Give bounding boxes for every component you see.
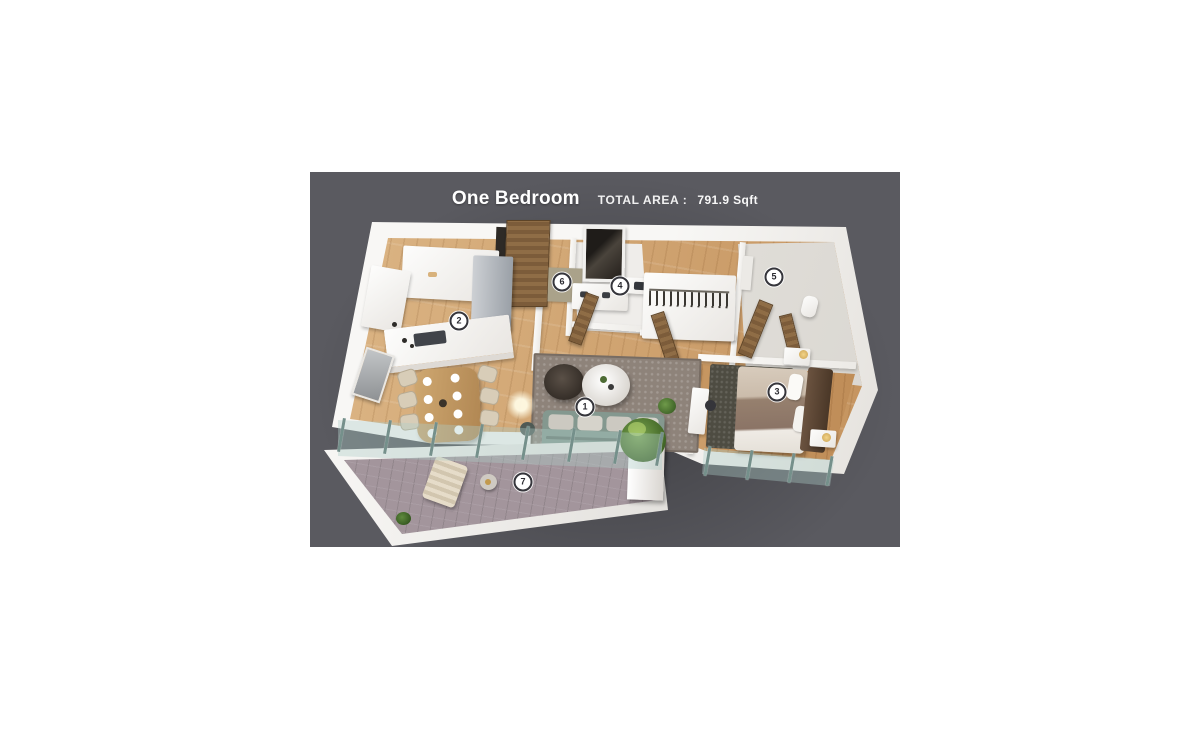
floorplan-panel: One Bedroom TOTAL AREA : 791.9 Sqft — [310, 172, 900, 547]
total-area: TOTAL AREA : 791.9 Sqft — [598, 193, 758, 207]
room-markers-layer: 1234567 — [310, 172, 900, 547]
marker-bathroom: 4 — [611, 277, 630, 296]
total-area-value: 791.9 Sqft — [697, 193, 758, 207]
marker-entry: 6 — [553, 273, 572, 292]
marker-balcony: 7 — [514, 473, 533, 492]
marker-bedroom: 3 — [768, 383, 787, 402]
marker-closet-room: 5 — [765, 268, 784, 287]
marker-living-room: 1 — [576, 398, 595, 417]
marker-kitchen: 2 — [450, 312, 469, 331]
page-background: One Bedroom TOTAL AREA : 791.9 Sqft — [0, 0, 1200, 733]
plan-title: One Bedroom — [452, 188, 580, 210]
total-area-label: TOTAL AREA : — [598, 193, 688, 207]
plan-header: One Bedroom TOTAL AREA : 791.9 Sqft — [310, 188, 900, 210]
floorplan-render: 1234567 — [310, 172, 900, 547]
